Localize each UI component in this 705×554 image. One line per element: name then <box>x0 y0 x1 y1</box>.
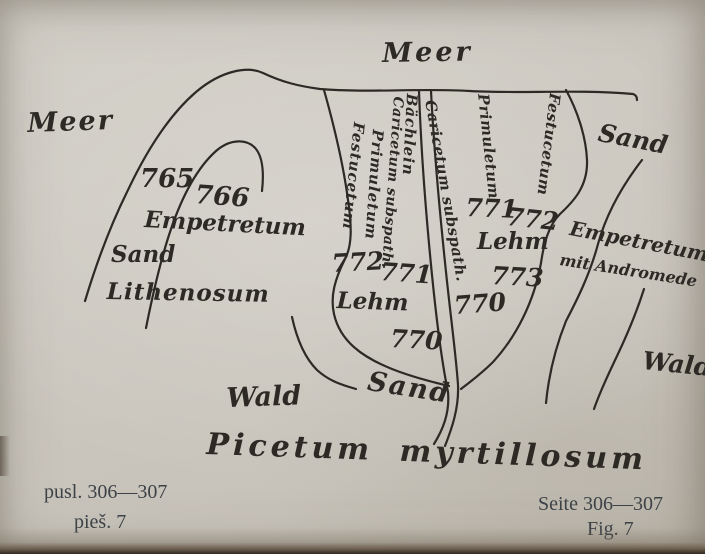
caption-page-ref-lt: pusl. 306—307 <box>44 482 167 502</box>
andromede-zone-left-boundary <box>546 160 642 403</box>
label-sand-left: Sand <box>111 243 175 266</box>
wald-right-boundary <box>594 289 644 409</box>
label-plot-772-left: 772 <box>331 248 384 276</box>
label-plot-765: 765 <box>140 166 194 192</box>
label-lehm-right: Lehm <box>477 230 549 253</box>
label-wald-right: Wald <box>641 348 705 380</box>
page-left-edge-shadow <box>0 436 10 476</box>
sand-wald-separator-arc <box>292 317 356 389</box>
label-lithenosum: Lithenosum <box>107 280 270 306</box>
caption-page-ref-de: Seite 306—307 <box>538 494 663 514</box>
page-bottom-edge-shadow <box>0 528 705 554</box>
label-meer-left: Meer <box>27 107 114 137</box>
label-lehm-left: Lehm <box>336 289 409 314</box>
label-meer-top: Meer <box>382 38 473 67</box>
label-plot-771-left: 771 <box>379 259 433 288</box>
label-wald-bottom: Wald <box>226 382 302 412</box>
book-page-photo: Meer Meer 765 766 Empetretum Sand Lithen… <box>0 0 705 554</box>
label-plot-773: 773 <box>491 263 544 291</box>
label-plot-770-mid: 770 <box>390 326 443 354</box>
label-plot-770-right: 770 <box>453 289 507 318</box>
label-plot-766: 766 <box>194 182 250 212</box>
